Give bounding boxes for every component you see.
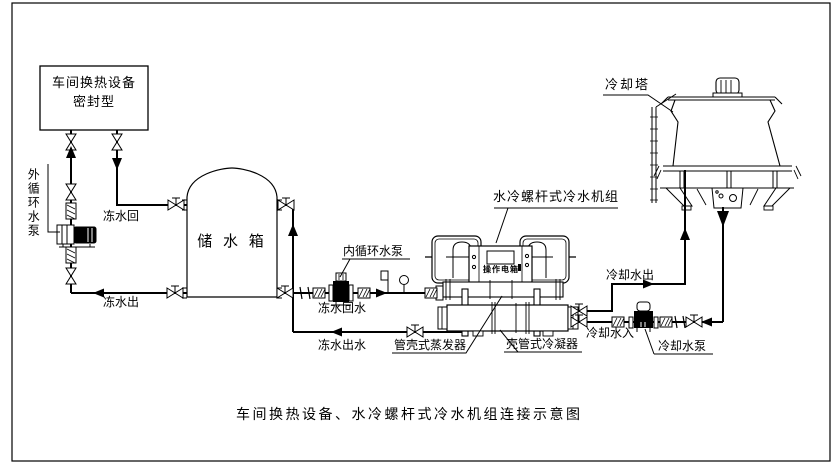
external-pump-label: 外循环水泵	[26, 168, 39, 238]
cooling-water-out-label: 冷却水出	[606, 269, 654, 282]
workshop-label-line1: 车间换热设备	[40, 75, 148, 94]
cooling-water-in-label: 冷却水入	[586, 327, 634, 340]
pipes	[71, 130, 723, 332]
flow-arrows	[66, 146, 729, 337]
fan-motor	[716, 78, 739, 94]
external-circulation-pump	[57, 225, 96, 247]
tower-ladder	[650, 94, 676, 203]
cooling-tower-label: 冷却塔	[605, 79, 650, 93]
chilled-return-water-label: 冻水回水	[318, 302, 366, 315]
piping-diagram: 车间换热设备 密封型 外循环水泵 冻水回 冻水出 储 水 箱 内循环水泵 冻水回…	[0, 0, 837, 467]
chilled-water-return-label: 冻水回	[103, 210, 139, 223]
chiller-unit	[425, 236, 578, 336]
cooling-tower	[650, 78, 801, 210]
cooling-pump-label: 冷却水泵	[658, 340, 706, 353]
pressure-gauge	[400, 276, 409, 294]
chilled-out-water-label: 冻水出水	[318, 339, 366, 352]
leader-lines	[48, 95, 713, 354]
chiller-unit-label: 水冷螺杆式冷水机组	[493, 191, 619, 205]
condenser-vessel	[438, 302, 578, 336]
control-display	[487, 251, 514, 264]
valves	[66, 134, 702, 337]
evaporator-label: 管壳式蒸发器	[394, 339, 466, 352]
condenser-label: 壳管式冷凝器	[506, 338, 578, 351]
thermometer	[381, 271, 388, 293]
fittings	[66, 203, 685, 328]
storage-tank-label: 储 水 箱	[189, 233, 275, 250]
evaporator-vessel	[436, 279, 563, 300]
diagram-caption: 车间换热设备、水冷螺杆式冷水机组连接示意图	[236, 408, 583, 423]
control-box-label: 操作电箱	[483, 266, 519, 275]
diagram-linework	[0, 0, 837, 467]
workshop-label-line2: 密封型	[40, 94, 148, 113]
internal-pump-label: 内循环水泵	[343, 245, 403, 258]
workshop-label: 车间换热设备 密封型	[40, 75, 148, 113]
chilled-water-out-label: 冻水出	[103, 296, 139, 309]
